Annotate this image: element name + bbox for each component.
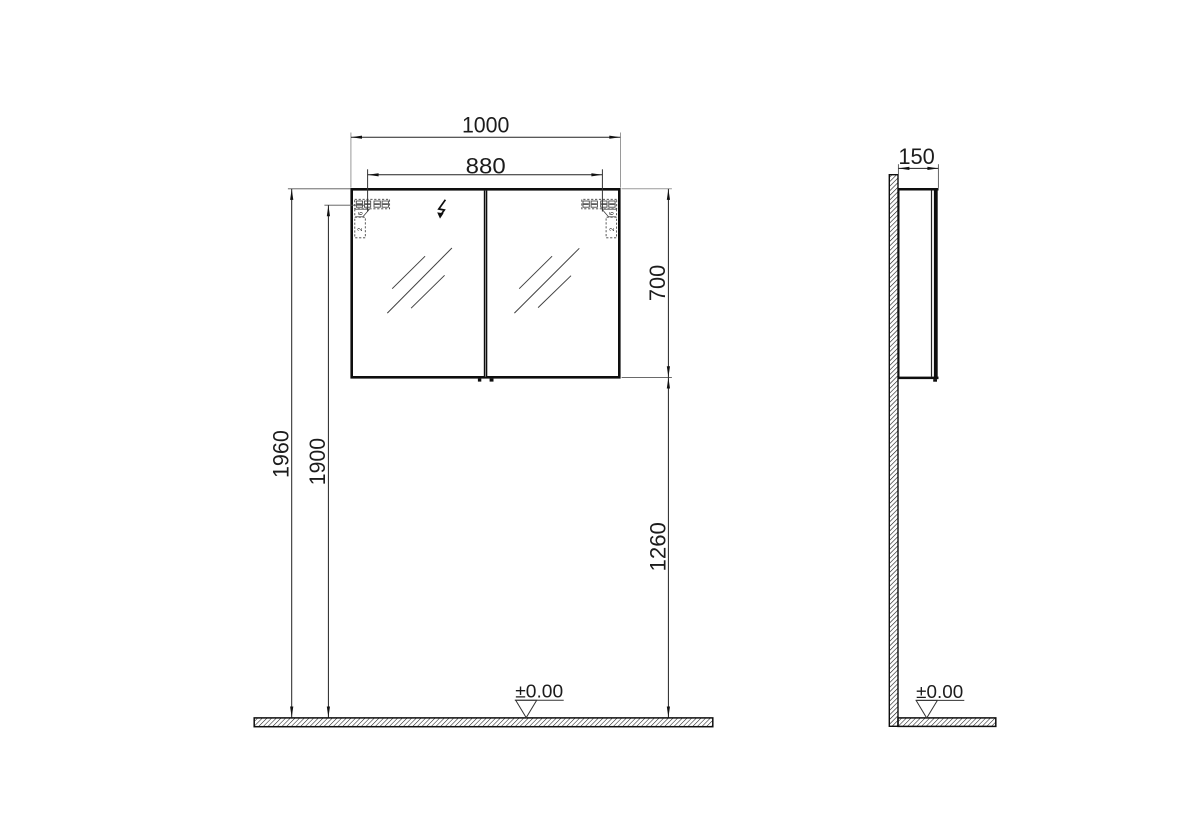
svg-text:880: 880	[466, 154, 506, 179]
svg-text:±0.00: ±0.00	[916, 682, 963, 702]
svg-text:150: 150	[898, 144, 935, 169]
svg-text:1260: 1260	[645, 522, 670, 571]
svg-text:1000: 1000	[462, 113, 510, 138]
svg-text:±0.00: ±0.00	[515, 681, 563, 701]
svg-text:1960: 1960	[268, 430, 293, 478]
svg-text:700: 700	[645, 265, 670, 301]
svg-text:1900: 1900	[305, 438, 330, 485]
